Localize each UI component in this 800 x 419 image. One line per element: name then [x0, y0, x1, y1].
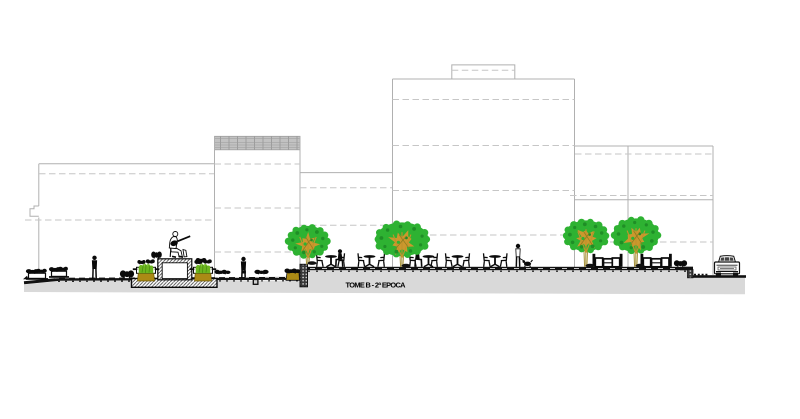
svg-text:TOME B - 2ª EPOCA: TOME B - 2ª EPOCA: [346, 281, 407, 290]
